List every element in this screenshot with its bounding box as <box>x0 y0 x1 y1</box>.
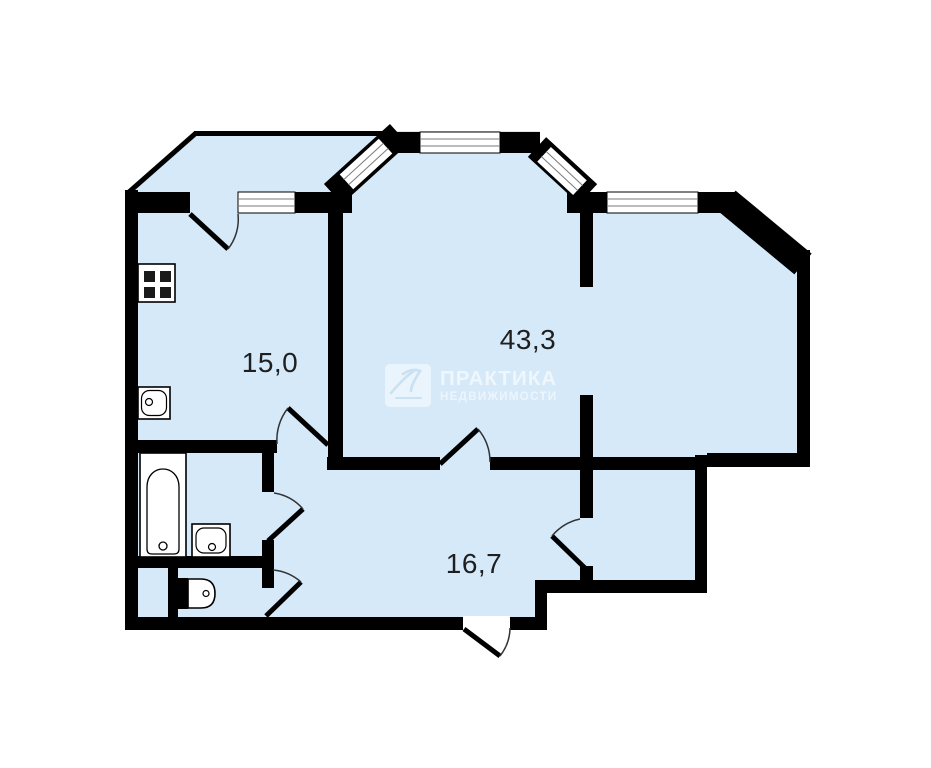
window-right <box>607 192 698 213</box>
toilet-tank <box>177 578 188 609</box>
wall-kitchen-top-left <box>125 192 190 213</box>
hallway-area-label: 16,7 <box>446 548 503 579</box>
wall-bathroom-right-upper <box>262 440 274 492</box>
window-frame <box>607 192 698 213</box>
floorplan-page: 15,0 43,3 16,7 ПРАКТИКА НЕДВИЖИМОСТИ <box>0 0 931 768</box>
floorplan-canvas: 15,0 43,3 16,7 ПРАКТИКА НЕДВИЖИМОСТИ <box>0 0 931 768</box>
wall-wc-right <box>262 566 274 588</box>
wall-wc-shaft-divider <box>168 568 178 617</box>
wall-hallway-top-left <box>327 457 440 470</box>
living-room-area-label: 43,3 <box>500 324 557 355</box>
wall-bottom-step <box>535 580 547 630</box>
wall-bottom-right <box>547 580 707 593</box>
window-kitchen <box>238 192 295 213</box>
window-bay-top <box>420 132 500 153</box>
wall-storage-right <box>695 455 707 593</box>
wall-right-outer <box>797 250 810 467</box>
kitchen-area-label: 15,0 <box>242 347 299 378</box>
burner <box>144 287 155 298</box>
stove-icon <box>138 264 175 302</box>
entrance-opening <box>463 616 510 631</box>
wall-balcony-front <box>194 131 390 136</box>
watermark-subtitle: НЕДВИЖИМОСТИ <box>440 391 557 403</box>
sink-body <box>192 524 230 557</box>
bathroom-sink-icon <box>192 524 230 557</box>
bathtub-icon <box>140 453 186 557</box>
window-frame <box>420 132 500 153</box>
wall-right-section-bottom <box>707 453 810 467</box>
window-frame <box>238 192 295 213</box>
wall-kitchen-bottom <box>125 440 277 453</box>
wall-bay-cap-right <box>500 132 540 153</box>
burner <box>144 271 155 282</box>
sink-body <box>138 387 170 419</box>
wall-top-right-b <box>698 192 736 213</box>
burner <box>160 271 171 282</box>
watermark-title: ПРАКТИКА <box>440 367 557 390</box>
wall-stub-upper <box>580 213 593 287</box>
wall-hallway-top-right <box>490 457 707 470</box>
wall-kitchen-top-right <box>295 192 352 213</box>
toilet-icon <box>177 578 215 609</box>
toilet-bowl <box>188 579 215 608</box>
burner <box>160 287 171 298</box>
kitchen-sink-icon <box>138 387 170 419</box>
wall-bottom-left <box>125 617 463 630</box>
wall-stub-lower <box>580 395 593 518</box>
wall-kitchen-divider <box>328 213 343 468</box>
watermark: ПРАКТИКА НЕДВИЖИМОСТИ <box>385 364 557 407</box>
